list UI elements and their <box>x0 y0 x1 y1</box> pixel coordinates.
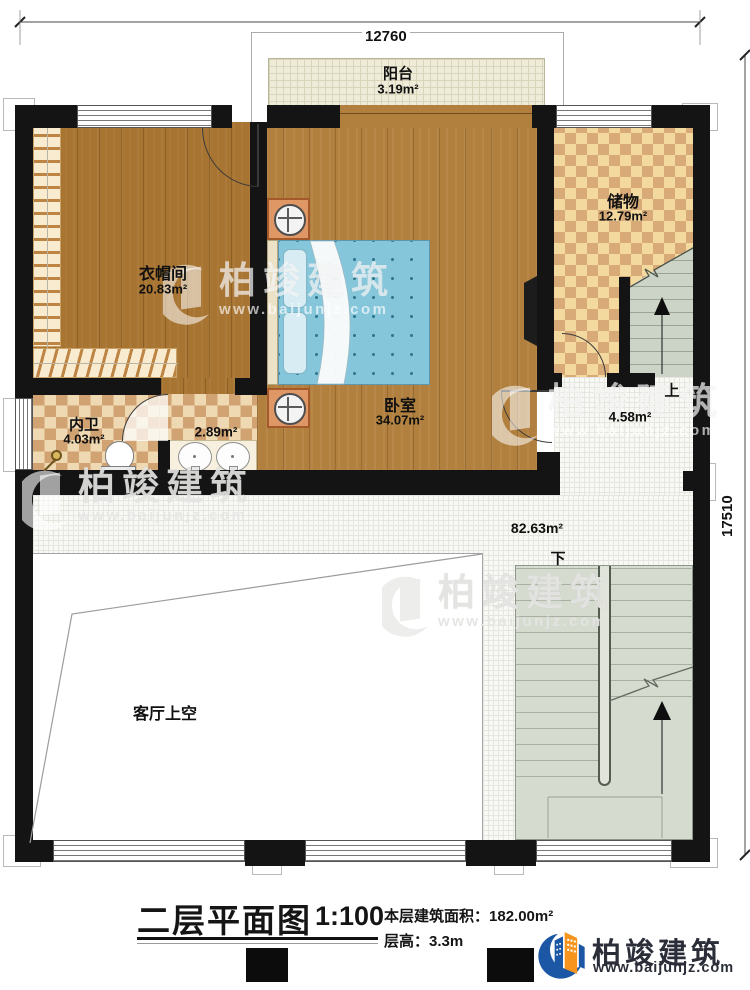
title-block: 二层平面图 1:100 本层建筑面积：182.00m² 层高：3.3m <box>0 880 750 990</box>
nightstand <box>267 388 310 428</box>
window-bathroom <box>15 398 33 470</box>
sink <box>178 442 212 472</box>
floor-height-label: 层高： <box>384 933 429 950</box>
column-marker <box>487 948 534 982</box>
sink <box>216 442 250 472</box>
floor-height-value: 3.3m <box>429 933 463 950</box>
wall-bathroom-north <box>15 378 161 395</box>
wall <box>15 840 53 862</box>
room-area-storage: 12.79m² <box>599 209 647 224</box>
plan-scale: 1:100 <box>315 901 384 932</box>
plan-title: 二层平面图 <box>137 894 312 942</box>
room-label-living-void: 客厅上空 <box>133 700 197 724</box>
floor-area-label: 本层建筑面积： <box>384 908 489 925</box>
room-area-stair-landing: 4.58m² <box>609 410 652 425</box>
room-label-balcony: 阳台 <box>383 63 413 84</box>
balcony-slider-door <box>340 105 532 128</box>
bedroom-door-leaf <box>501 390 551 392</box>
wall-pier <box>466 840 536 866</box>
window-bottom-1 <box>53 840 245 862</box>
stairs-down-label: 下 <box>550 548 565 569</box>
wall <box>267 105 340 128</box>
wall-vanity-north <box>235 378 267 395</box>
floor-area-value: 182.00m² <box>489 908 553 925</box>
wall <box>15 470 33 855</box>
dimension-right: 17510 <box>719 492 736 540</box>
stair-divider <box>598 566 611 786</box>
wardrobe-bottom <box>33 348 177 378</box>
room-label-cloakroom: 衣帽间 <box>139 260 187 284</box>
dimension-top: 12760 <box>362 28 410 45</box>
window-bottom-2 <box>305 840 466 862</box>
hall-tile-left <box>33 495 483 553</box>
shower-head-icon <box>51 450 62 461</box>
floor-height-line: 层高：3.3m <box>384 930 463 951</box>
lamp-icon <box>274 393 306 425</box>
wall <box>212 105 232 128</box>
wall-bedroom-corner <box>537 452 560 495</box>
room-area-bedroom: 34.07m² <box>376 413 424 428</box>
wall-pier <box>245 840 305 866</box>
stairs-up-label: 上 <box>664 380 679 401</box>
window-bottom-3 <box>536 840 672 862</box>
living-void-area <box>30 553 483 843</box>
brand-logo-icon <box>538 927 588 979</box>
wall <box>693 105 710 855</box>
cloakroom-floor-patch <box>161 378 235 395</box>
cloakroom-door-leaf <box>257 124 259 186</box>
wall-hall-north <box>15 470 560 495</box>
bed-headboard <box>267 240 278 385</box>
room-area-cloakroom: 20.83m² <box>139 282 187 297</box>
pillow <box>283 249 307 308</box>
room-area-hall: 82.63m² <box>511 520 563 536</box>
room-area-balcony: 3.19m² <box>377 82 418 97</box>
wall-bedroom-east <box>537 122 554 392</box>
pillow <box>283 312 307 374</box>
wall <box>672 840 710 862</box>
room-area-vanity: 2.89m² <box>195 425 238 440</box>
title-underline-2 <box>137 943 378 944</box>
stair-steps <box>611 568 694 698</box>
wall-storage-south <box>554 373 562 387</box>
wall-stair-side <box>619 277 630 377</box>
staircase-main <box>515 565 693 840</box>
window-top-right <box>556 105 652 128</box>
column-marker <box>246 948 288 982</box>
stair-steps <box>516 568 598 784</box>
lamp-icon <box>274 204 306 236</box>
tv <box>524 276 537 346</box>
room-area-bathroom: 4.03m² <box>63 432 104 447</box>
nightstand <box>267 198 310 240</box>
wardrobe-rail <box>47 124 48 348</box>
window-top-left <box>77 105 212 128</box>
wardrobe-left <box>33 123 61 347</box>
wardrobe-rail <box>34 363 178 364</box>
wall-storage-south <box>607 373 655 387</box>
wall-pilaster <box>683 471 693 491</box>
title-underline <box>137 937 378 940</box>
hall-tile-strip <box>483 565 515 840</box>
floor-area-line: 本层建筑面积：182.00m² <box>384 905 553 926</box>
floorplan-page: 12760 17510 <box>0 0 750 990</box>
brand-site: www.baijunjz.com <box>593 960 734 976</box>
wall <box>15 105 33 398</box>
